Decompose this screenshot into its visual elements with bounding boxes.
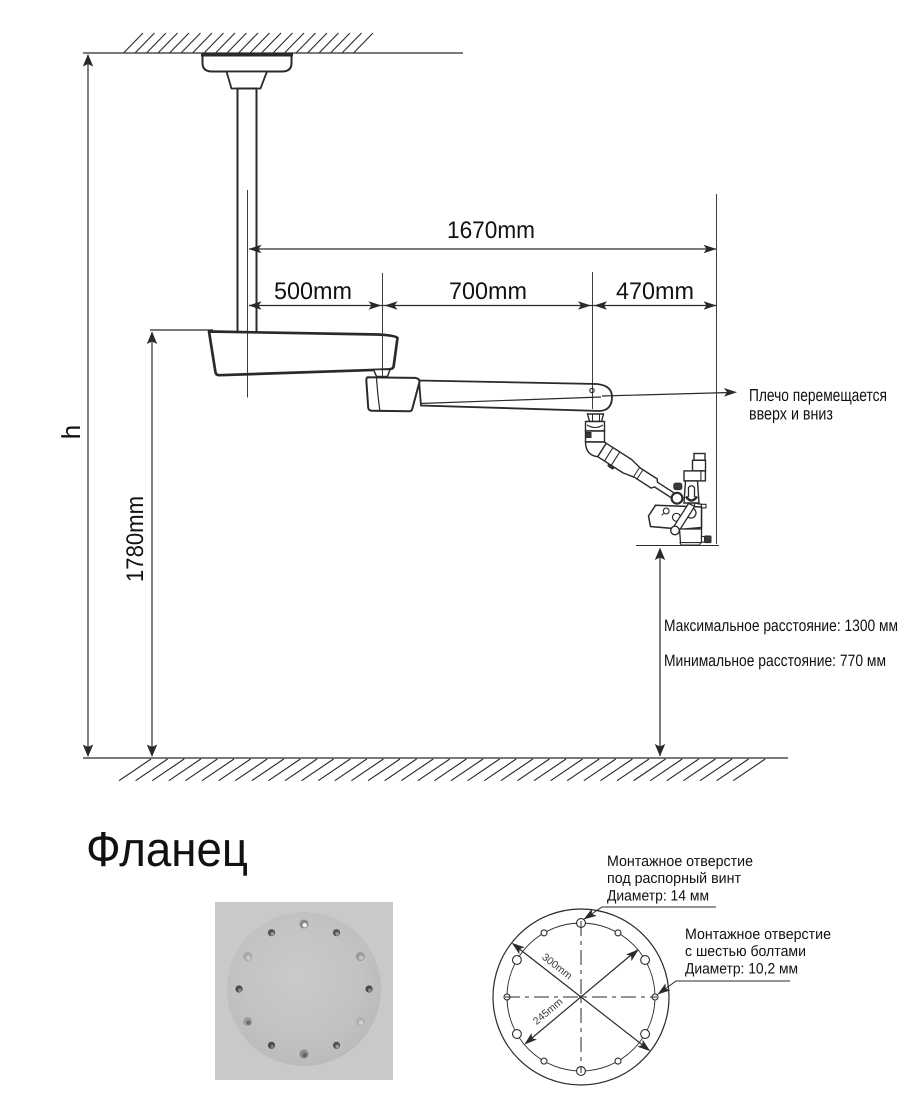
svg-text:1670mm: 1670mm [447,217,535,244]
svg-text:Плечо перемещается: Плечо перемещается [749,385,887,405]
svg-text:с шестью болтами: с шестью болтами [685,943,806,960]
svg-text:Монтажное отверстие: Монтажное отверстие [685,926,831,943]
svg-text:Минимальное расстояние: 770 мм: Минимальное расстояние: 770 мм [664,652,886,670]
svg-text:Диаметр: 14 мм: Диаметр: 14 мм [607,888,709,905]
svg-text:Монтажное отверстие: Монтажное отверстие [607,853,753,870]
svg-text:Максимальное расстояние: 1300: Максимальное расстояние: 1300 мм [664,617,898,635]
svg-text:Диаметр: 10,2 мм: Диаметр: 10,2 мм [685,961,798,978]
svg-text:h: h [56,425,86,439]
svg-text:500mm: 500mm [274,278,352,305]
svg-text:470mm: 470mm [616,278,694,305]
svg-text:вверх и вниз: вверх и вниз [749,404,833,424]
svg-text:под распорный винт: под распорный винт [607,870,741,887]
svg-text:Фланец: Фланец [86,823,248,877]
svg-text:1780mm: 1780mm [122,496,149,582]
svg-text:700mm: 700mm [449,278,527,305]
